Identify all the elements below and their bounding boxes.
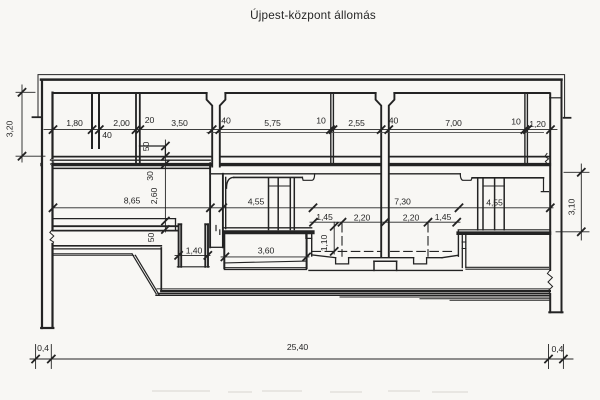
svg-text:1,45: 1,45 <box>435 212 452 222</box>
svg-text:1,10: 1,10 <box>319 234 329 251</box>
svg-text:2,60: 2,60 <box>149 187 159 204</box>
svg-text:3,60: 3,60 <box>258 246 275 256</box>
svg-text:0,4: 0,4 <box>552 344 564 354</box>
svg-text:50: 50 <box>146 233 156 243</box>
svg-text:40: 40 <box>389 116 399 126</box>
svg-text:7,00: 7,00 <box>445 118 462 128</box>
svg-text:30: 30 <box>145 171 155 181</box>
svg-text:10: 10 <box>511 117 521 127</box>
svg-text:2,55: 2,55 <box>348 118 365 128</box>
svg-text:1,45: 1,45 <box>316 212 333 222</box>
svg-text:20: 20 <box>145 115 155 125</box>
svg-text:1,80: 1,80 <box>66 118 83 128</box>
svg-text:4,55: 4,55 <box>486 198 503 208</box>
svg-text:Újpest-központ állomás: Újpest-központ állomás <box>250 9 376 22</box>
svg-text:4,55: 4,55 <box>248 197 265 207</box>
svg-text:10: 10 <box>316 116 326 126</box>
svg-text:25,40: 25,40 <box>287 342 309 352</box>
svg-text:7,30: 7,30 <box>394 197 411 207</box>
svg-text:40: 40 <box>221 116 231 126</box>
svg-text:3,50: 3,50 <box>171 118 188 128</box>
svg-text:1,40: 1,40 <box>186 246 203 256</box>
svg-text:2,20: 2,20 <box>354 213 371 223</box>
svg-text:1,20: 1,20 <box>529 119 546 129</box>
svg-text:40: 40 <box>102 130 112 140</box>
svg-text:3,20: 3,20 <box>5 120 15 137</box>
svg-text:50: 50 <box>141 142 151 152</box>
svg-text:5,75: 5,75 <box>264 118 281 128</box>
svg-text:2,00: 2,00 <box>113 118 130 128</box>
svg-text:0,4: 0,4 <box>37 343 49 353</box>
svg-text:2,20: 2,20 <box>403 213 420 223</box>
svg-text:3,10: 3,10 <box>567 198 577 215</box>
svg-text:8,65: 8,65 <box>124 196 141 206</box>
